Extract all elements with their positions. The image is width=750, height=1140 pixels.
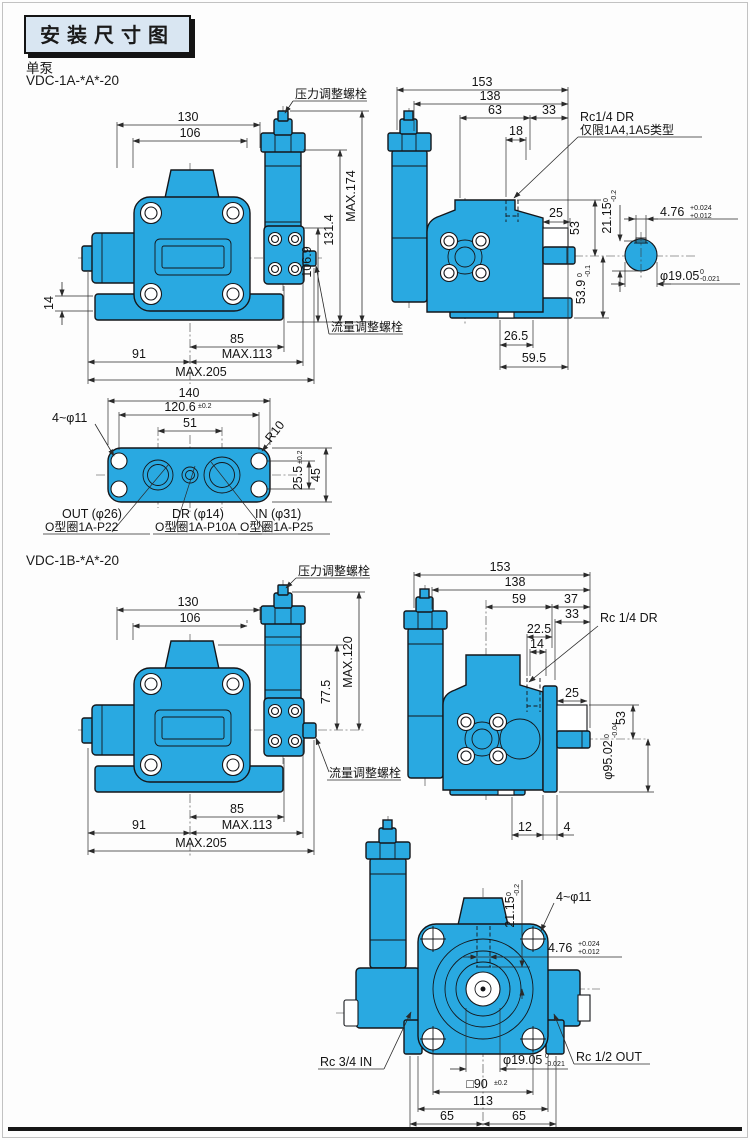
svg-text:φ95.02: φ95.02: [601, 740, 615, 779]
vdc1a-side-view: 153 138 63 33 18 25 53: [388, 75, 740, 370]
dim-14: 14: [42, 296, 56, 310]
vdc1a-front-view: 130 106 106.9 131.4 MAX.174 14: [42, 86, 403, 384]
svg-text:+0.012: +0.012: [578, 949, 600, 956]
dim-37: 37: [564, 592, 578, 606]
dim-106-9: 106.9: [300, 246, 314, 277]
svg-text:21.15: 21.15: [503, 896, 517, 927]
mount-holes-label: 4~φ11: [52, 411, 87, 425]
dim-25: 25: [549, 206, 563, 220]
dim-33: 33: [565, 607, 579, 621]
vdc1b-front-view: 130 106 77.5 MAX.120 85 91: [78, 563, 401, 856]
vdc1b-rear-view: 21.15 0 -0.2 4~φ11 4.76 +0.024 +0.012 φ1…: [318, 816, 650, 1127]
svg-text:±0.2: ±0.2: [198, 403, 212, 410]
svg-text:-0.1: -0.1: [585, 265, 592, 277]
dim-4-76: 4.76: [548, 941, 572, 955]
dim-max113: MAX.113: [222, 347, 273, 361]
rc14-dr-label: Rc 1/4 DR: [600, 611, 658, 625]
pump-body-side: [388, 111, 575, 318]
svg-text:0: 0: [577, 273, 584, 277]
page-footer-rule: [8, 1127, 742, 1131]
dim-4-76: 4.76: [660, 205, 684, 219]
dim-113: 113: [473, 1094, 493, 1108]
rc12-out-label: Rc 1/2 OUT: [576, 1050, 642, 1064]
dim-140: 140: [179, 386, 200, 400]
svg-text:-0.2: -0.2: [611, 190, 618, 202]
mount-holes-label: 4~φ11: [556, 890, 591, 904]
dim-53: 53: [568, 221, 582, 235]
dim-106: 106: [180, 126, 201, 140]
dim-max205: MAX.205: [175, 365, 226, 379]
dim-22-5: 22.5: [527, 622, 551, 636]
dim-14: 14: [530, 637, 544, 651]
catalog-page: 安装尺寸图 单泵 VDC-1A-*A*-20 VDC-1B-*A*-20: [0, 0, 750, 1140]
dim-138: 138: [505, 575, 526, 589]
dim-65-left: 65: [440, 1109, 454, 1123]
dim-77-5: 77.5: [319, 680, 333, 704]
dim-45: 45: [309, 468, 323, 482]
dim-19-05: φ19.05: [503, 1053, 542, 1067]
rc14-dr-label: Rc1/4 DR: [580, 110, 634, 124]
dim-90: □90: [466, 1077, 488, 1091]
dim-59-5: 59.5: [522, 351, 546, 365]
dim-26-5: 26.5: [504, 329, 528, 343]
dim-max174: MAX.174: [344, 170, 358, 221]
dim-33: 33: [542, 103, 556, 117]
corner-radius-label: R10: [262, 418, 287, 445]
rc14-dr-note: 仅限1A4,1A5类型: [580, 123, 674, 137]
vdc1b-side-view: 153 138 59 37 33 22.5 14 2: [404, 560, 658, 840]
flow-bolt-label: 流量调整螺栓: [329, 765, 401, 780]
svg-text:0: 0: [603, 198, 610, 202]
dim-4: 4: [564, 820, 571, 834]
flow-bolt-label: 流量调整螺栓: [331, 319, 403, 334]
dim-130: 130: [178, 595, 199, 609]
dim-106: 106: [180, 611, 201, 625]
svg-text:0: 0: [506, 892, 513, 896]
svg-text:53.9: 53.9: [574, 280, 588, 304]
dim-138: 138: [480, 89, 501, 103]
svg-text:25.5: 25.5: [291, 466, 305, 490]
pressure-bolt-label: 压力调整螺栓: [298, 563, 370, 578]
dim-91: 91: [132, 818, 146, 832]
svg-text:-0.021: -0.021: [700, 276, 720, 283]
svg-text:21.15: 21.15: [600, 202, 614, 233]
out-port-label: OUT (φ26): [62, 507, 122, 521]
dim-65-right: 65: [512, 1109, 526, 1123]
dimension-drawings: 130 106 106.9 131.4 MAX.174 14: [0, 0, 750, 1140]
dim-12: 12: [518, 820, 532, 834]
in-port-label: IN (φ31): [255, 507, 301, 521]
dim-max205: MAX.205: [175, 836, 226, 850]
port-labels: OUT (φ26) O型圈1A-P22 DR (φ14) O型圈1A-P10A …: [43, 507, 330, 534]
dim-120-6: 120.6: [164, 400, 195, 414]
dim-91: 91: [132, 347, 146, 361]
svg-text:+0.024: +0.024: [578, 941, 600, 948]
dim-85: 85: [230, 802, 244, 816]
svg-text:+0.012: +0.012: [690, 213, 712, 220]
svg-text:+0.024: +0.024: [690, 205, 712, 212]
dim-153: 153: [490, 560, 511, 574]
dim-59: 59: [512, 592, 526, 606]
dr-port-label: DR (φ14): [172, 507, 224, 521]
svg-text:±0.2: ±0.2: [494, 1080, 508, 1087]
dim-25: 25: [565, 686, 579, 700]
dim-21-15: 21.15 0 -0.2: [600, 190, 618, 234]
pump-body-rear: [344, 820, 590, 1054]
rc34-in-label: Rc 3/4 IN: [320, 1055, 372, 1069]
shaft-section-detail: 21.15 0 -0.2 4.76 +0.024 +0.012 φ19.05 0: [600, 190, 740, 292]
vdc1a-bottom-view: 140 120.6 ±0.2 51 4~φ11 R10 25.5: [43, 386, 332, 534]
svg-text:0: 0: [545, 1053, 549, 1060]
dim-19-05: φ19.05: [660, 269, 699, 283]
dr-oring-label: O型圈1A-P10A: [155, 520, 236, 534]
dim-25-5: 25.5 ±0.2: [291, 450, 305, 490]
pressure-bolt-label: 压力调整螺栓: [295, 86, 367, 101]
dim-95-02: φ95.02 0 -0.04: [601, 722, 619, 780]
dim-53-9: 53.9 0 -0.1: [574, 265, 592, 304]
svg-text:0: 0: [700, 269, 704, 276]
dim-51: 51: [183, 416, 197, 430]
out-oring-label: O型圈1A-P22: [45, 520, 119, 534]
svg-text:0: 0: [604, 734, 611, 738]
dim-63: 63: [488, 103, 502, 117]
mounting-flange: [108, 448, 270, 502]
dim-max113: MAX.113: [222, 818, 273, 832]
dim-max120: MAX.120: [341, 636, 355, 687]
svg-text:±0.2: ±0.2: [297, 450, 304, 464]
svg-text:-0.04: -0.04: [612, 722, 619, 738]
dim-153: 153: [472, 75, 493, 89]
svg-text:-0.2: -0.2: [514, 884, 521, 896]
dim-18: 18: [509, 124, 523, 138]
a-side-drain-callout: Rc1/4 DR 仅限1A4,1A5类型: [514, 110, 702, 198]
pump-body-side: [404, 589, 590, 795]
dim-21-15: 21.15 0 -0.2: [503, 884, 521, 928]
dim-85: 85: [230, 332, 244, 346]
dim-131-4: 131.4: [322, 214, 336, 245]
in-oring-label: O型圈1A-P25: [240, 520, 314, 534]
svg-text:R10: R10: [262, 418, 287, 445]
dim-130: 130: [178, 110, 199, 124]
